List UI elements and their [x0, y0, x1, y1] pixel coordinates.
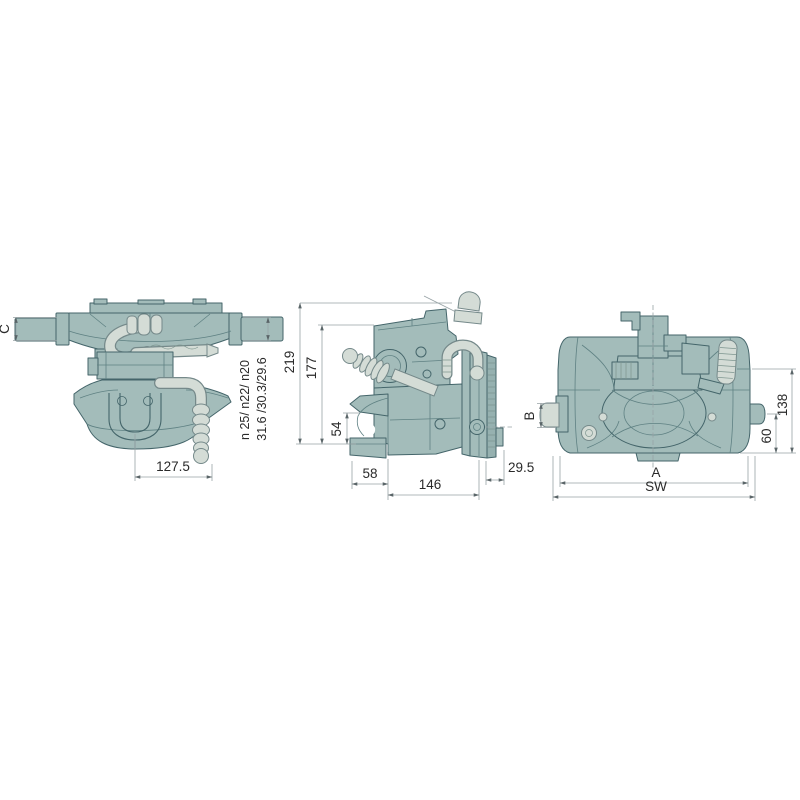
- coupling-technical-drawing: C n 25/ n22/ n20 31.6 /30.3/29.6 127.5: [0, 0, 800, 800]
- dim-label-54: 54: [329, 421, 344, 437]
- dim-label-b: B: [522, 411, 537, 420]
- dim-label-177: 177: [304, 357, 319, 380]
- dim-label-219: 219: [282, 351, 297, 374]
- front-view: C n 25/ n22/ n20 31.6 /30.3/29.6 127.5: [0, 299, 283, 481]
- dim-label-127-5: 127.5: [156, 459, 190, 474]
- drawing-canvas: C n 25/ n22/ n20 31.6 /30.3/29.6 127.5: [0, 0, 800, 800]
- dim-label-60: 60: [759, 428, 774, 443]
- dim-label-29-5: 29.5: [508, 460, 534, 475]
- dim-label-a: A: [651, 465, 660, 480]
- dim-label-sw: SW: [645, 479, 667, 494]
- dim-label-146: 146: [419, 477, 442, 492]
- rear-spring: [716, 339, 737, 384]
- rear-view: B 138 60 A SW: [522, 305, 796, 501]
- dim-label-pin-flats: 31.6 /30.3/29.6: [255, 357, 269, 440]
- dim-58: 58: [352, 459, 388, 500]
- dim-label-pin-diameters: n 25/ n22/ n20: [238, 360, 252, 440]
- dim-label-58: 58: [362, 466, 377, 481]
- side-view: 219 177 54 58 146 29.5: [282, 292, 534, 500]
- dim-label-c: C: [0, 324, 12, 334]
- dim-sw: SW: [553, 456, 755, 501]
- dim-label-138: 138: [775, 394, 790, 417]
- dim-146: 146: [388, 460, 479, 500]
